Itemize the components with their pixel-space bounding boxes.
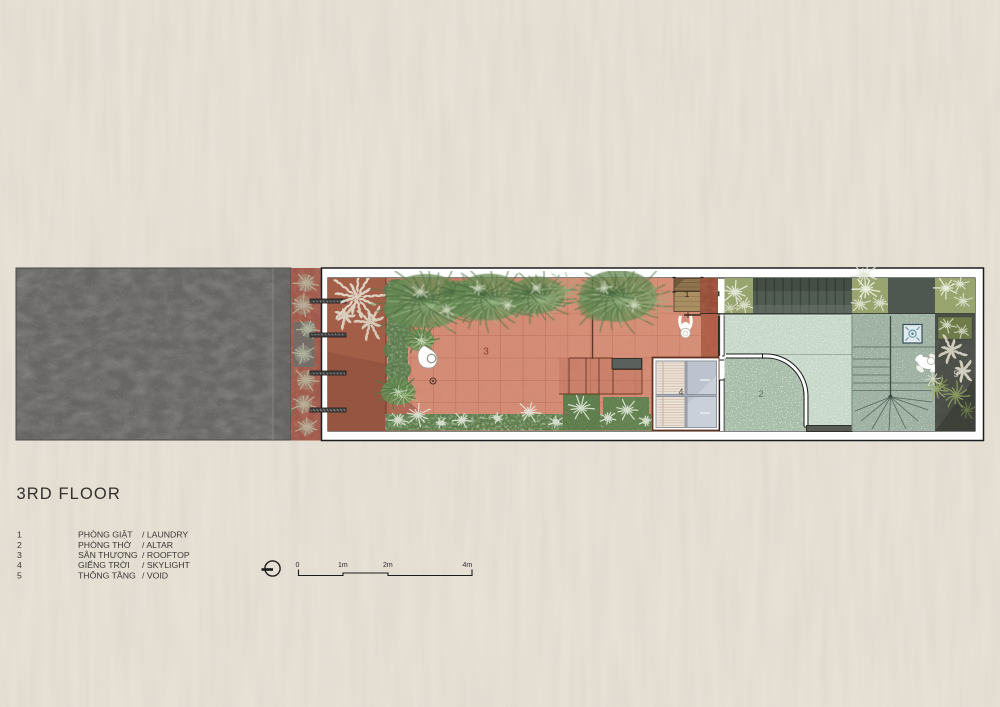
svg-text:0: 0 (296, 562, 300, 569)
svg-text:PHÒNG THỜ: PHÒNG THỜ (78, 540, 132, 550)
svg-text:2m: 2m (383, 562, 393, 569)
svg-text:2: 2 (17, 540, 22, 550)
svg-text:/ SKYLIGHT: / SKYLIGHT (142, 560, 190, 570)
svg-text:PHÒNG GIẶT: PHÒNG GIẶT (78, 530, 133, 540)
svg-text:1m: 1m (338, 562, 348, 569)
svg-text:/ LAUNDRY: / LAUNDRY (142, 530, 188, 540)
svg-text:3: 3 (17, 550, 22, 560)
svg-text:/ ROOFTOP: / ROOFTOP (142, 550, 190, 560)
svg-text:/ ALTAR: / ALTAR (142, 540, 173, 550)
svg-text:5: 5 (953, 369, 958, 380)
svg-text:4: 4 (678, 387, 683, 397)
svg-text:GIẾNG TRỜI: GIẾNG TRỜI (78, 560, 130, 570)
svg-text:1: 1 (17, 530, 22, 540)
svg-text:1: 1 (685, 289, 690, 299)
svg-text:4: 4 (17, 560, 22, 570)
svg-text:SÂN THƯỢNG: SÂN THƯỢNG (78, 550, 138, 560)
svg-text:/ VOID: / VOID (142, 571, 168, 581)
svg-text:3: 3 (483, 347, 489, 358)
svg-text:4m: 4m (463, 562, 473, 569)
svg-text:2: 2 (758, 389, 763, 400)
svg-text:THÔNG TẦNG: THÔNG TẦNG (78, 571, 136, 581)
svg-text:3RD FLOOR: 3RD FLOOR (17, 485, 121, 503)
svg-text:5: 5 (17, 571, 22, 581)
